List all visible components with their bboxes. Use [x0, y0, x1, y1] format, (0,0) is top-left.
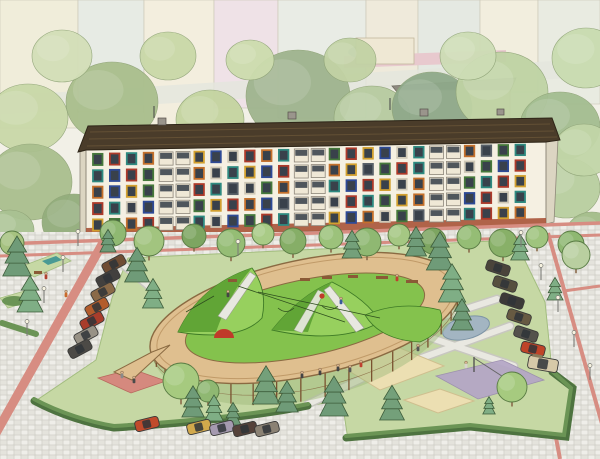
window — [499, 176, 509, 186]
balcony — [159, 168, 173, 181]
window — [228, 216, 238, 227]
balcony-glazing — [447, 162, 459, 168]
window — [127, 218, 137, 229]
window — [499, 208, 509, 218]
window — [211, 216, 221, 227]
person-body — [417, 347, 420, 352]
red-ball — [319, 293, 324, 298]
balcony-glazing — [312, 198, 324, 204]
balcony — [311, 197, 325, 210]
window — [516, 160, 526, 170]
window — [144, 202, 154, 213]
building-left-wall — [80, 150, 86, 236]
window — [363, 164, 373, 175]
balcony — [446, 177, 460, 190]
person-body — [396, 277, 399, 282]
person — [319, 368, 322, 375]
balcony-glazing — [160, 185, 172, 191]
balcony-glazing — [177, 185, 189, 191]
window — [279, 198, 289, 209]
person — [337, 364, 340, 371]
person — [121, 371, 124, 378]
window — [211, 167, 221, 178]
window — [414, 194, 424, 205]
tree-highlight — [499, 374, 516, 391]
window — [465, 146, 475, 157]
tree-highlight — [281, 230, 295, 244]
person-head — [360, 360, 363, 363]
person-body — [349, 368, 352, 373]
window — [127, 186, 137, 197]
window — [211, 184, 221, 195]
window — [482, 145, 492, 156]
tree-highlight — [181, 96, 218, 126]
person — [45, 272, 48, 279]
balcony — [430, 193, 444, 206]
window — [465, 162, 475, 173]
person-head — [465, 361, 468, 364]
window — [93, 154, 103, 165]
window — [465, 209, 475, 220]
window — [228, 199, 238, 210]
window — [380, 195, 390, 206]
balcony — [176, 168, 190, 181]
window — [330, 213, 340, 224]
balcony — [430, 178, 444, 191]
window — [245, 215, 255, 226]
balcony-glazing — [295, 198, 307, 204]
tree-highlight — [559, 129, 592, 155]
window — [380, 211, 390, 222]
person-head — [301, 371, 304, 374]
window — [194, 152, 204, 163]
tree-highlight — [527, 228, 539, 240]
balcony — [176, 200, 190, 213]
window — [110, 153, 120, 164]
balcony-glazing — [312, 166, 324, 172]
tree-highlight — [218, 231, 233, 246]
balcony — [311, 213, 325, 226]
person-head — [121, 371, 124, 374]
bench — [34, 271, 42, 274]
person-body — [319, 371, 322, 376]
person-body — [45, 275, 48, 280]
person — [360, 360, 363, 367]
tree-highlight — [328, 42, 357, 64]
tree-highlight — [320, 227, 333, 240]
lamp-head — [588, 364, 592, 368]
balcony — [176, 184, 190, 197]
lamp-head — [76, 230, 80, 234]
tree-highlight — [458, 227, 471, 240]
balcony — [294, 181, 308, 194]
person-head — [417, 344, 420, 347]
person-body — [340, 300, 343, 305]
balcony-glazing — [295, 214, 307, 220]
tree-highlight — [340, 92, 382, 124]
balcony — [159, 217, 173, 230]
balcony-glazing — [447, 194, 459, 200]
person-body — [465, 364, 468, 369]
balcony-glazing — [431, 179, 443, 185]
window — [279, 166, 289, 177]
balcony-glazing — [295, 150, 307, 156]
tree-highlight — [389, 226, 401, 238]
balcony-glazing — [431, 163, 443, 169]
balcony-glazing — [177, 153, 189, 159]
balcony-glazing — [312, 214, 324, 220]
window — [262, 166, 272, 177]
person-head — [133, 376, 136, 379]
window — [127, 153, 137, 164]
background-tree — [140, 32, 196, 80]
lamp-head — [42, 287, 46, 291]
window — [279, 214, 289, 225]
window — [380, 163, 390, 174]
window — [414, 163, 424, 174]
balcony — [294, 165, 308, 178]
balcony-glazing — [160, 153, 172, 159]
person — [340, 297, 343, 304]
window — [482, 177, 492, 188]
tree-highlight — [198, 382, 210, 394]
window — [330, 197, 340, 208]
balcony — [159, 152, 173, 165]
window — [110, 186, 120, 197]
tree-highlight — [490, 231, 505, 246]
window — [262, 198, 272, 209]
window — [516, 176, 526, 186]
window — [245, 183, 255, 194]
illustration-stage — [0, 0, 600, 459]
window — [516, 207, 526, 217]
window — [363, 196, 373, 207]
window — [347, 164, 357, 175]
balcony — [294, 213, 308, 226]
window — [397, 195, 407, 206]
window — [397, 179, 407, 190]
window — [330, 181, 340, 192]
balcony-glazing — [312, 182, 324, 188]
balcony — [311, 165, 325, 178]
lamp-head — [61, 256, 65, 260]
lamp-head — [572, 331, 576, 335]
window — [279, 150, 289, 161]
window — [228, 183, 238, 194]
background-tree — [440, 32, 496, 80]
person — [65, 290, 68, 297]
person-body — [133, 379, 136, 384]
tree-highlight — [47, 200, 82, 228]
person-head — [319, 368, 322, 371]
tree-highlight — [253, 225, 265, 237]
lamp-head — [539, 264, 543, 268]
window — [262, 182, 272, 193]
courtyard-scene — [0, 0, 600, 459]
balcony — [294, 197, 308, 210]
lamp-head — [519, 231, 523, 235]
window — [499, 145, 509, 155]
window — [93, 203, 103, 214]
window — [380, 148, 390, 159]
window — [93, 170, 103, 181]
tree-highlight — [563, 243, 578, 258]
balcony-glazing — [177, 201, 189, 207]
lamp-head — [25, 320, 29, 324]
tree-highlight — [557, 34, 594, 64]
tree-highlight — [183, 226, 196, 239]
window — [482, 161, 492, 172]
window — [127, 202, 137, 213]
person — [349, 365, 352, 372]
window — [414, 147, 424, 158]
window — [228, 151, 238, 162]
balcony-glazing — [160, 218, 172, 224]
balcony — [176, 152, 190, 165]
lamp-head — [236, 240, 240, 244]
balcony — [311, 181, 325, 194]
person-body — [65, 293, 68, 298]
window — [347, 148, 357, 159]
window — [211, 200, 221, 211]
window — [228, 167, 238, 178]
window — [363, 180, 373, 191]
background-tree — [32, 30, 92, 82]
tree-highlight — [230, 44, 256, 64]
window — [380, 179, 390, 190]
person-head — [337, 364, 340, 367]
person — [417, 344, 420, 351]
person — [396, 274, 399, 281]
window — [194, 200, 204, 211]
balcony — [159, 201, 173, 214]
window — [465, 193, 475, 204]
window — [93, 187, 103, 198]
person-body — [121, 374, 124, 379]
window — [279, 182, 289, 193]
person — [133, 376, 136, 383]
window — [397, 163, 407, 174]
window — [144, 169, 154, 180]
balcony-glazing — [447, 178, 459, 184]
window — [347, 180, 357, 191]
balcony-glazing — [431, 194, 443, 200]
window — [194, 168, 204, 179]
tree-highlight — [444, 37, 475, 61]
window — [363, 212, 373, 223]
window — [127, 169, 137, 180]
window — [414, 179, 424, 190]
balcony-glazing — [295, 166, 307, 172]
window — [347, 212, 357, 223]
balcony-glazing — [312, 150, 324, 156]
tree-highlight — [37, 35, 70, 61]
balcony — [446, 209, 460, 222]
window — [482, 193, 492, 204]
balcony — [446, 193, 460, 206]
person-head — [396, 274, 399, 277]
person-head — [227, 290, 230, 293]
person-body — [301, 374, 304, 379]
window — [465, 177, 475, 188]
tree-highlight — [165, 366, 185, 386]
balcony-glazing — [295, 182, 307, 188]
person-head — [45, 272, 48, 275]
background-tree — [324, 38, 376, 82]
window — [245, 167, 255, 178]
person-head — [65, 290, 68, 293]
balcony-glazing — [177, 169, 189, 175]
person — [227, 290, 230, 297]
person-body — [227, 293, 230, 298]
window — [397, 147, 407, 158]
window — [482, 208, 492, 219]
tree-highlight — [136, 228, 153, 245]
balcony — [446, 161, 460, 174]
window — [363, 148, 373, 159]
window — [110, 170, 120, 181]
balcony-glazing — [177, 217, 189, 223]
window — [262, 150, 272, 161]
person-head — [340, 297, 343, 300]
balcony — [430, 146, 444, 159]
balcony-glazing — [447, 147, 459, 153]
window — [194, 184, 204, 195]
window — [330, 149, 340, 160]
window — [330, 165, 340, 176]
window — [516, 145, 526, 155]
window — [499, 192, 509, 202]
balcony — [446, 146, 460, 159]
window — [110, 203, 120, 214]
person-body — [360, 363, 363, 368]
balcony — [430, 209, 444, 222]
balcony-glazing — [447, 210, 459, 216]
person-head — [349, 365, 352, 368]
window — [245, 151, 255, 162]
balcony-glazing — [431, 147, 443, 153]
window — [414, 210, 424, 221]
person — [301, 371, 304, 378]
window — [499, 161, 509, 171]
lamp-head — [556, 296, 560, 300]
tree-highlight — [144, 37, 175, 61]
window — [245, 199, 255, 210]
window — [144, 153, 154, 164]
person — [465, 361, 468, 368]
person-body — [337, 367, 340, 372]
balcony-glazing — [160, 202, 172, 208]
window — [347, 196, 357, 207]
balcony — [159, 184, 173, 197]
balcony — [311, 149, 325, 162]
balcony-glazing — [431, 210, 443, 216]
window — [211, 151, 221, 162]
balcony — [430, 162, 444, 175]
window — [516, 192, 526, 202]
balcony-glazing — [160, 169, 172, 175]
balcony — [294, 149, 308, 162]
window — [144, 185, 154, 196]
background-tree — [226, 40, 274, 80]
car-cabin — [537, 358, 549, 370]
window — [397, 211, 407, 222]
